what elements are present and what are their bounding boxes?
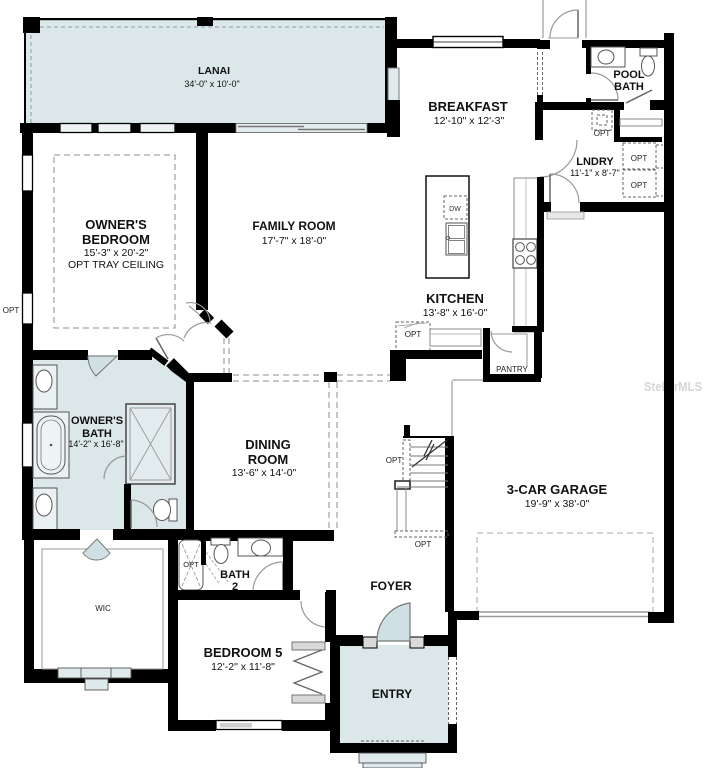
svg-text:OWNER'S: OWNER'S bbox=[85, 217, 147, 232]
svg-text:3-CAR GARAGE: 3-CAR GARAGE bbox=[507, 482, 608, 497]
svg-text:OPT: OPT bbox=[594, 129, 611, 138]
svg-text:19'-9" x 38'-0": 19'-9" x 38'-0" bbox=[525, 498, 590, 510]
svg-text:OPT: OPT bbox=[386, 456, 403, 465]
svg-text:12'-2" x 11'-8": 12'-2" x 11'-8" bbox=[211, 661, 275, 673]
svg-text:13'-6" x 14'-0": 13'-6" x 14'-0" bbox=[232, 467, 297, 479]
svg-text:KITCHEN: KITCHEN bbox=[426, 291, 484, 306]
svg-text:ROOM: ROOM bbox=[248, 452, 288, 467]
svg-text:15'-3" x 20'-2": 15'-3" x 20'-2" bbox=[84, 247, 149, 259]
svg-text:FAMILY ROOM: FAMILY ROOM bbox=[252, 219, 335, 233]
svg-text:DINING: DINING bbox=[245, 437, 291, 452]
svg-text:17'-7" x 18'-0": 17'-7" x 18'-0" bbox=[262, 235, 327, 247]
svg-text:WIC: WIC bbox=[95, 604, 111, 613]
svg-text:BEDROOM: BEDROOM bbox=[82, 232, 150, 247]
svg-text:FOYER: FOYER bbox=[370, 579, 412, 593]
svg-text:OPT: OPT bbox=[415, 540, 432, 549]
svg-text:BEDROOM 5: BEDROOM 5 bbox=[204, 645, 283, 660]
svg-text:13'-8" x 16'-0": 13'-8" x 16'-0" bbox=[423, 307, 488, 319]
svg-text:OWNER'S: OWNER'S bbox=[71, 415, 123, 427]
svg-text:OPT: OPT bbox=[183, 560, 199, 569]
svg-text:ENTRY: ENTRY bbox=[372, 687, 412, 701]
svg-text:PANTRY: PANTRY bbox=[496, 365, 528, 374]
svg-text:OPT: OPT bbox=[631, 181, 648, 190]
svg-text:LANAI: LANAI bbox=[198, 65, 230, 77]
svg-text:34'-0" x 10'-0": 34'-0" x 10'-0" bbox=[184, 79, 239, 89]
svg-text:OPT: OPT bbox=[3, 306, 20, 315]
svg-text:11'-1" x 8'-7": 11'-1" x 8'-7" bbox=[570, 168, 620, 178]
svg-text:BATH: BATH bbox=[614, 81, 644, 93]
svg-text:OPT: OPT bbox=[631, 154, 648, 163]
svg-text:DW: DW bbox=[449, 206, 461, 213]
svg-text:LNDRY: LNDRY bbox=[576, 156, 614, 168]
svg-text:BATH: BATH bbox=[220, 569, 250, 581]
svg-text:OPT: OPT bbox=[405, 330, 422, 339]
svg-text:12'-10" x 12'-3": 12'-10" x 12'-3" bbox=[434, 115, 505, 127]
svg-text:OPT TRAY CEILING: OPT TRAY CEILING bbox=[68, 259, 164, 271]
svg-text:14'-2" x 16'-8": 14'-2" x 16'-8" bbox=[68, 439, 123, 449]
svg-text:POOL: POOL bbox=[613, 69, 644, 81]
svg-text:BREAKFAST: BREAKFAST bbox=[428, 99, 508, 114]
